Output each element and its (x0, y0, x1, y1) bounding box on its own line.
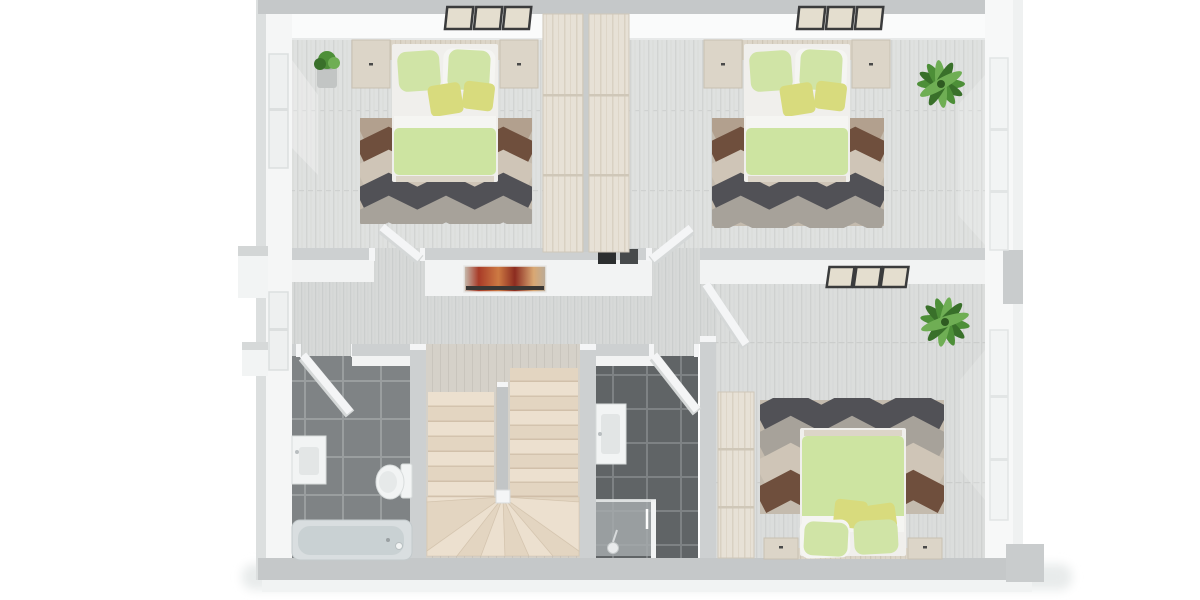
stair-left-flight (428, 392, 494, 497)
tub-drain (386, 538, 390, 542)
door-jamb (700, 336, 716, 342)
vanity-sink (292, 436, 326, 484)
shower-glass-frame (651, 500, 656, 558)
nightstand-knob (923, 546, 927, 549)
wall-bump (238, 246, 268, 256)
toilet (376, 464, 412, 499)
tub-faucet (396, 543, 403, 550)
bottom-wall (258, 558, 1034, 580)
window-bar (269, 108, 288, 111)
cushion (461, 80, 495, 112)
window-right-1 (990, 58, 1008, 250)
wall-bed3-west (700, 342, 716, 558)
double-bed (744, 44, 850, 182)
duvet (746, 128, 848, 175)
wardrobe-bedroom1 (543, 14, 583, 252)
floor-plan-render (0, 0, 1200, 600)
frames-bedroom1 (445, 7, 531, 29)
nightstand-knob (779, 546, 783, 549)
stair-right-flight (510, 368, 578, 497)
nightstand-knob (517, 63, 521, 66)
wall-face (292, 260, 374, 282)
window-bar (990, 458, 1008, 461)
wall-bump (238, 256, 268, 298)
nightstand-knob (369, 63, 373, 66)
wall-cap (580, 344, 596, 350)
wall-bump (242, 342, 268, 350)
wall-bump (1003, 250, 1023, 304)
door-jamb (296, 344, 301, 357)
door-jamb (694, 344, 699, 357)
cushion (813, 80, 847, 112)
floor-plan-canvas (0, 0, 1200, 600)
cushion (427, 82, 464, 118)
nightstand-knob (869, 63, 873, 66)
abstract-art-dark-band (466, 286, 544, 290)
walk-in-shower (596, 499, 656, 558)
stair-divider-cap (497, 382, 508, 387)
top-wall (258, 0, 1012, 14)
wall-bed1-hall (292, 248, 374, 260)
door-jamb (649, 344, 654, 357)
footboard (804, 430, 902, 436)
door-jamb (369, 248, 375, 261)
wall-face (352, 356, 410, 366)
wall-bath1-north (352, 344, 410, 356)
wardrobe-bedroom2 (589, 14, 629, 252)
duvet (394, 128, 496, 175)
stair-winders (427, 497, 579, 556)
bathtub (292, 520, 412, 560)
window-bar (269, 328, 288, 331)
window-right-2 (990, 330, 1008, 520)
doorway-floor (654, 344, 698, 356)
bottom-wall-face (262, 580, 1032, 592)
frames-bedroom3 (827, 267, 909, 287)
window-bar (990, 190, 1008, 193)
wall-bath2-north (596, 344, 654, 356)
nightstand-knob (721, 63, 725, 66)
pillow (803, 521, 849, 557)
window-bar (990, 395, 1008, 398)
wall-bedroom-divider (583, 14, 589, 252)
double-bed (799, 428, 906, 559)
footboard (748, 176, 846, 182)
wardrobe-bedroom3 (718, 392, 754, 558)
wall-bump (242, 350, 268, 376)
newel-post (496, 490, 510, 503)
stair-divider-wall (497, 386, 508, 496)
window-bar (990, 128, 1008, 131)
staircase (427, 368, 579, 556)
vanity-sink (596, 404, 626, 464)
wall-bump (1006, 544, 1044, 582)
cushion (779, 82, 816, 118)
footboard (396, 176, 494, 182)
wall-cap (410, 344, 426, 350)
pillow (853, 519, 899, 555)
double-bed (392, 44, 498, 182)
frames-bedroom2 (797, 7, 883, 29)
wall-face (596, 356, 654, 366)
shower-head (608, 543, 619, 554)
wall-stair-east (580, 350, 596, 558)
wall-bed2-hall (700, 248, 985, 260)
